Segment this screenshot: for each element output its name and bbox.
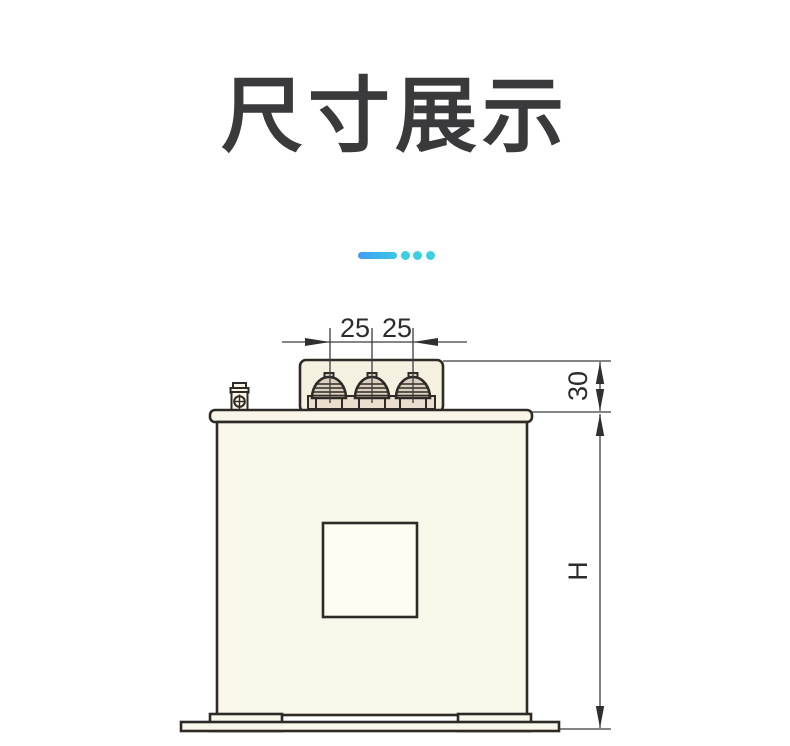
dimension-arrow-right <box>413 338 438 346</box>
dimension-arrow-up <box>596 362 604 384</box>
dimension-arrow-left <box>305 338 330 346</box>
dim-label-pitch-right: 25 <box>382 313 412 343</box>
top-lid <box>210 410 532 422</box>
base-plate <box>181 722 559 731</box>
terminal-pitch-dimension: 25 25 <box>282 313 467 346</box>
dimension-drawing: 25 25 <box>0 0 790 746</box>
mounting-bolt <box>231 383 249 412</box>
dimension-arrow-up <box>596 414 604 436</box>
dim-label-body-height: H <box>563 561 593 581</box>
dim-label-pitch-left: 25 <box>340 313 370 343</box>
dimension-arrow-down <box>596 389 604 411</box>
dim-label-terminal-height: 30 <box>563 371 593 401</box>
product-detail-image: 尺寸展示 25 25 <box>0 0 790 746</box>
dimension-arrow-down <box>596 706 604 728</box>
nameplate-window <box>323 523 417 617</box>
